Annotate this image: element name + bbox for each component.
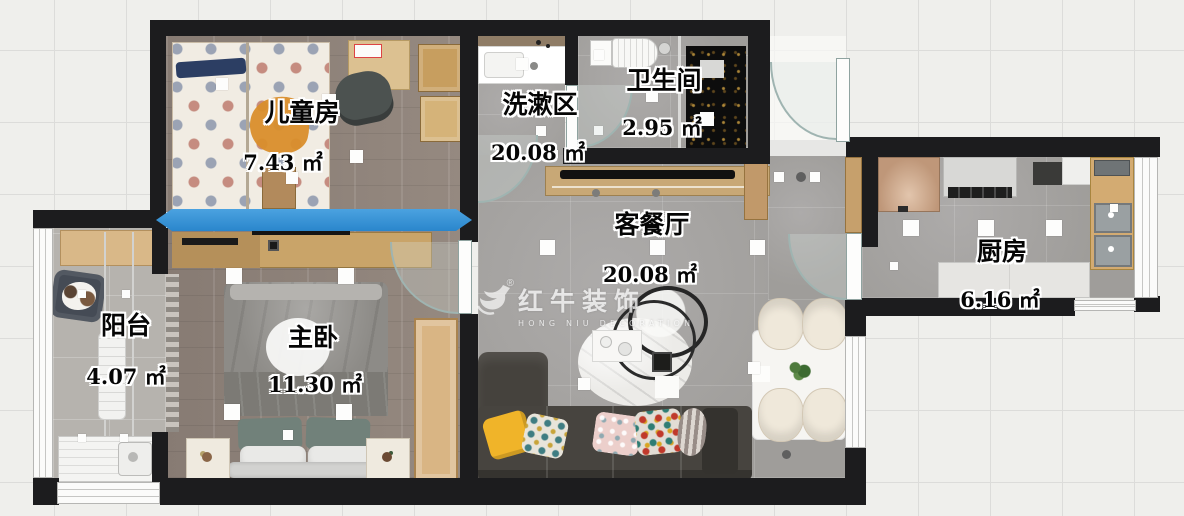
wall-kitchen-corner-br (1134, 296, 1160, 312)
spotlight (122, 290, 130, 298)
kitchen-fridge (878, 157, 940, 212)
dining-chair-tl (758, 298, 804, 350)
room-area-balcony: 4.07 ㎡ (86, 366, 165, 387)
tray-cup2 (618, 342, 632, 356)
balcony-sink-drain (128, 452, 138, 462)
spotlight (700, 112, 714, 126)
floor-plan-canvas: 儿童房 7.43 ㎡ 洗漱区 20.08 ㎡ 卫生间 2.95 ㎡ 客餐厅 20… (0, 0, 1184, 516)
dining-chair-br (802, 388, 848, 442)
kitchen-sink-faucet1 (1108, 212, 1114, 218)
wall-bedroom-living-lower (460, 314, 478, 480)
coffee-table-tray (592, 330, 642, 362)
spotlight (226, 268, 242, 284)
spotlight (283, 430, 293, 440)
spotlight (216, 78, 228, 90)
master-nightstand-plant-right (382, 452, 392, 462)
balcony-bottom-window (57, 482, 160, 504)
wall-left-children (150, 20, 166, 212)
spotlight (774, 172, 784, 182)
spotlight (750, 240, 765, 255)
brand-watermark: ® 红牛装饰 HONG NIU DECORATION (472, 282, 694, 328)
wash-faucet (530, 62, 538, 70)
sofa-throw-dark (702, 408, 738, 474)
kitchen-hob (948, 187, 1012, 198)
balcony-shelf (60, 230, 160, 266)
wall-living-bottom (440, 478, 866, 505)
wall-children-wash-divider (460, 20, 478, 212)
wall-bedroom-bottom (160, 478, 470, 505)
room-label-master: 主卧 (288, 325, 338, 350)
spotlight (903, 220, 919, 236)
coffee-table-photo (652, 352, 672, 372)
spotlight (890, 262, 898, 270)
living-right-window (845, 336, 866, 448)
dining-chair-bl (758, 388, 804, 442)
kitchen-hood (1033, 162, 1063, 185)
tray-cup1 (600, 336, 612, 348)
wall-bath-right (748, 20, 770, 160)
master-bed-sheet-top (230, 284, 382, 300)
kitchen-bottom-sill (1074, 300, 1136, 311)
watermark-brand-text: 红牛装饰 (518, 282, 694, 318)
room-label-balcony: 阳台 (101, 313, 151, 338)
master-desk-speaker (268, 240, 279, 251)
master-desk-item (182, 238, 238, 245)
room-label-living: 客餐厅 (614, 212, 689, 237)
master-door-leaf (458, 240, 472, 314)
room-area-bath: 2.95 ㎡ (622, 117, 701, 138)
entry-door-leaf (836, 58, 850, 142)
wash-counter-backsplash (478, 36, 566, 46)
wall-living-right-lower (845, 448, 866, 482)
tv-console-knob-right (652, 189, 660, 197)
spotlight (594, 50, 604, 60)
entry-shoe-cabinet (744, 160, 768, 220)
watermark-subtitle-text: HONG NIU DECORATION (518, 319, 694, 328)
wall-bath-bottom (563, 148, 770, 164)
spotlight (350, 150, 363, 163)
spotlight (78, 434, 86, 442)
room-area-living: 20.08 ㎡ (603, 264, 697, 285)
room-area-wash: 20.08 ㎡ (491, 142, 585, 163)
kitchen-cabinet-white (1062, 157, 1093, 185)
spotlight (810, 172, 820, 182)
toilet-bowl (612, 38, 658, 68)
room-label-bath: 卫生间 (626, 68, 701, 93)
room-label-kitchen: 厨房 (977, 239, 1027, 264)
dining-chair-tr (802, 298, 848, 350)
room-area-master: 11.30 ㎡ (268, 374, 362, 395)
wall-balcony-bedroom-top (152, 228, 168, 274)
room-label-wash: 洗漱区 (502, 92, 577, 117)
master-bed-bench (228, 462, 386, 478)
spotlight (120, 434, 128, 442)
dining-plant (786, 358, 812, 382)
entry-threshold (770, 140, 846, 156)
spotlight (78, 290, 86, 298)
spotlight (338, 268, 354, 284)
bath-accessory (658, 42, 671, 55)
master-nightstand-plant-left (202, 452, 212, 462)
sofa-pillow-diamond (520, 412, 569, 460)
wall-balcony-corner-bl (33, 478, 59, 505)
wall-balcony-bedroom-bottom (152, 432, 168, 482)
room-area-kitchen: 6.16 ㎡ (960, 289, 1039, 310)
bedroom-balcony-curtain (166, 274, 179, 432)
kitchen-fridge-handle (898, 206, 908, 212)
wash-item-dot1 (536, 40, 541, 45)
wall-wash-bath-divider (565, 33, 578, 85)
spotlight (540, 240, 555, 255)
room-area-children: 7.43 ㎡ (243, 152, 322, 173)
ceiling-dot (796, 172, 806, 182)
wall-kitchen-corner-tr (1134, 137, 1160, 157)
tv-console-knob-left (592, 189, 600, 197)
spotlight (336, 404, 352, 420)
wall-balcony-top (33, 210, 166, 228)
kitchen-counter-item (1094, 160, 1130, 176)
tv (560, 170, 735, 179)
kitchen-right-window (1134, 157, 1158, 298)
room-label-children: 儿童房 (264, 100, 339, 125)
ceiling-dot (782, 450, 791, 459)
spotlight (578, 378, 590, 390)
children-bed-divider (246, 42, 249, 210)
spotlight (516, 58, 528, 70)
children-wardrobe-upper (418, 44, 462, 92)
spotlight (1046, 220, 1062, 236)
master-wardrobe (414, 318, 458, 482)
wash-item-dot2 (546, 44, 550, 48)
registered-mark: ® (507, 278, 514, 289)
spotlight (650, 240, 665, 255)
spotlight (224, 404, 240, 420)
shower-tray (700, 60, 724, 78)
kitchen-door-leaf (846, 233, 862, 300)
blue-highlight-arrow (156, 209, 472, 231)
balcony-left-window (33, 228, 53, 478)
tv-console-shelf-line (552, 186, 762, 188)
children-wardrobe-lower (420, 96, 462, 142)
spotlight (978, 220, 994, 236)
spotlight (748, 362, 760, 374)
sofa-pillow-multicolor (634, 408, 684, 457)
spotlight (1110, 204, 1118, 212)
hallway-cabinet (845, 157, 862, 233)
wall-kitchen-top (846, 137, 1160, 157)
kitchen-sink-faucet2 (1108, 246, 1114, 252)
coffee-table-box (655, 376, 679, 398)
bull-logo-icon: ® (472, 282, 512, 320)
children-desk-paper (354, 44, 382, 58)
